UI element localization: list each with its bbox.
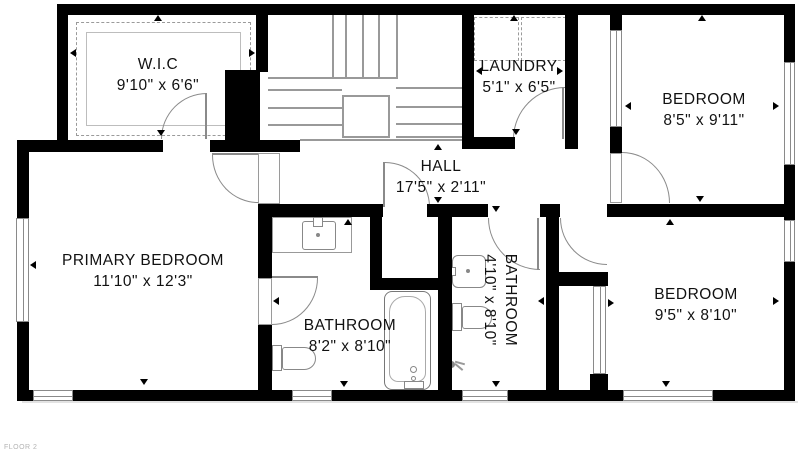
- wall-segment: [462, 137, 515, 149]
- room-dims: 4'10" x 8'10": [479, 235, 500, 365]
- door-arc: [560, 218, 607, 265]
- wall-segment: [610, 127, 622, 153]
- window: [292, 390, 332, 401]
- wall-shadow: [22, 401, 798, 403]
- stair-tread: [378, 15, 380, 78]
- sliding-door: [593, 286, 606, 374]
- room-label-bathroom-main: BATHROOM 8'2" x 8'10": [260, 315, 440, 357]
- room-label-bedroom-bottom-right: BEDROOM 9'5" x 8'10": [616, 284, 776, 326]
- window: [462, 390, 508, 401]
- tick-marker: [492, 381, 500, 387]
- room-dims: 8'2" x 8'10": [260, 336, 440, 357]
- wall-segment: [546, 204, 559, 401]
- door-leaf: [537, 218, 539, 270]
- room-label-bathroom-small: BATHROOM 4'10" x 8'10": [479, 235, 521, 365]
- wall-segment: [427, 204, 488, 217]
- sink-drain: [316, 233, 320, 237]
- room-dims: 9'10" x 6'6": [58, 75, 258, 96]
- wall-segment: [258, 204, 272, 278]
- floor-label: FLOOR 2: [4, 444, 37, 451]
- window: [784, 62, 795, 165]
- tub-drain: [410, 366, 417, 373]
- room-name: HALL: [341, 156, 541, 177]
- tick-marker: [510, 15, 518, 21]
- stair-void: [342, 95, 390, 138]
- door-opening: [258, 153, 280, 204]
- tick-marker: [273, 297, 279, 305]
- stair-tread: [268, 107, 342, 109]
- door-leaf: [205, 93, 207, 139]
- tick-marker: [512, 129, 520, 135]
- tick-marker: [344, 219, 352, 225]
- tick-marker: [492, 206, 500, 212]
- room-label-primary-bedroom: PRIMARY BEDROOM 11'10" x 12'3": [43, 250, 243, 292]
- tub-faucet: [404, 381, 424, 389]
- door-opening: [610, 153, 622, 203]
- tick-marker: [440, 297, 446, 305]
- stair-tread: [396, 123, 462, 125]
- wall-segment: [590, 374, 608, 401]
- room-dims: 8'5" x 9'11": [624, 110, 784, 131]
- wall-segment: [565, 137, 578, 149]
- floor-plan: W.I.C 9'10" x 6'6" LAUNDRY 5'1" x 6'5" B…: [0, 0, 800, 462]
- tick-marker: [268, 144, 276, 150]
- wall-segment: [546, 272, 608, 286]
- room-label-bedroom-top-right: BEDROOM 8'5" x 9'11": [624, 89, 784, 131]
- wall-segment: [610, 4, 622, 32]
- door-leaf: [212, 153, 258, 155]
- stair-tread: [268, 89, 342, 91]
- tick-marker: [157, 130, 165, 136]
- tick-marker: [138, 146, 146, 152]
- tick-marker: [140, 379, 148, 385]
- stair-tread: [396, 15, 398, 78]
- tick-marker: [340, 381, 348, 387]
- wall-segment: [57, 4, 795, 15]
- room-dims: 9'5" x 8'10": [616, 305, 776, 326]
- room-name: BATHROOM: [260, 315, 440, 336]
- dryer: [521, 17, 566, 61]
- stair-tread: [362, 15, 364, 78]
- wall-segment: [258, 204, 383, 217]
- door-arc: [622, 152, 670, 203]
- stair-edge: [300, 139, 462, 141]
- stair-tread: [396, 136, 462, 138]
- tick-marker: [608, 299, 614, 307]
- window: [623, 390, 713, 401]
- room-name: BEDROOM: [616, 284, 776, 305]
- tick-marker: [666, 219, 674, 225]
- tick-marker: [538, 297, 544, 305]
- room-name: BATHROOM: [500, 235, 521, 365]
- stair-tread: [345, 15, 347, 78]
- faucet: [313, 217, 323, 227]
- washer: [474, 17, 519, 61]
- stair-tread: [396, 106, 462, 108]
- window: [33, 390, 73, 401]
- tick-marker: [434, 144, 442, 150]
- stair-tread: [268, 124, 342, 126]
- door-leaf: [272, 276, 318, 278]
- room-name: W.I.C: [58, 54, 258, 75]
- room-name: PRIMARY BEDROOM: [43, 250, 243, 271]
- room-name: BEDROOM: [624, 89, 784, 110]
- tick-marker: [30, 261, 36, 269]
- wall-segment: [607, 204, 795, 217]
- toilet-tank: [452, 303, 462, 331]
- room-label-laundry: LAUNDRY 5'1" x 6'5": [419, 56, 619, 98]
- room-dims: 17'5" x 2'11": [341, 177, 541, 198]
- door-arc: [212, 155, 258, 203]
- room-label-wic: W.I.C 9'10" x 6'6": [58, 54, 258, 96]
- tick-marker: [698, 15, 706, 21]
- stair-tread: [332, 15, 334, 78]
- window: [784, 220, 795, 262]
- tick-marker: [696, 196, 704, 202]
- sink-drain: [466, 269, 470, 273]
- room-name: LAUNDRY: [419, 56, 619, 77]
- room-label-hall: HALL 17'5" x 2'11": [341, 156, 541, 198]
- wall-segment: [370, 278, 438, 290]
- room-dims: 5'1" x 6'5": [419, 77, 619, 98]
- tick-marker: [154, 15, 162, 21]
- tick-marker: [662, 381, 670, 387]
- room-dims: 11'10" x 12'3": [43, 271, 243, 292]
- window: [16, 218, 29, 322]
